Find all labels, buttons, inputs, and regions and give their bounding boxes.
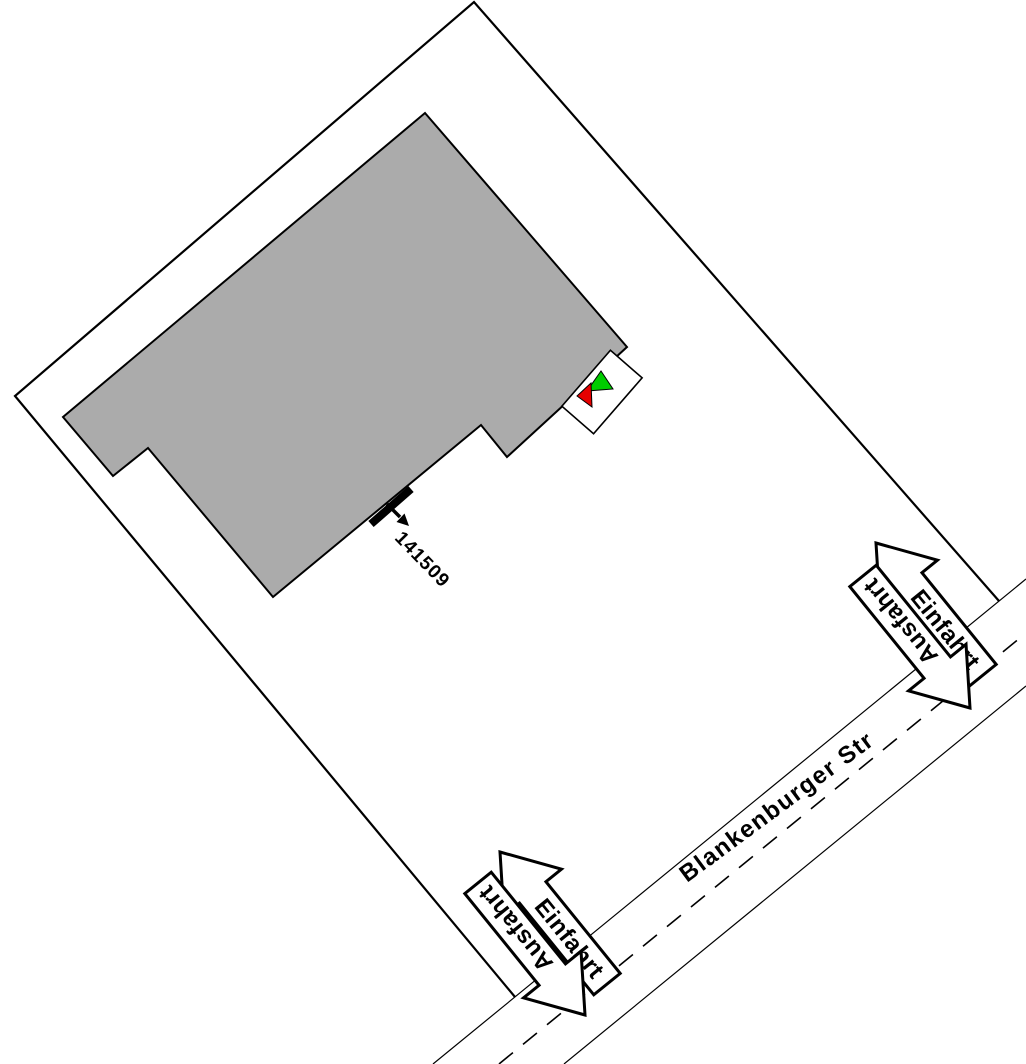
- site-plan-canvas: Blankenburger Str 141509 Einfahrt Ausfah…: [0, 0, 1026, 1064]
- site-plan-page: Blankenburger Str 141509 Einfahrt Ausfah…: [0, 0, 1026, 1064]
